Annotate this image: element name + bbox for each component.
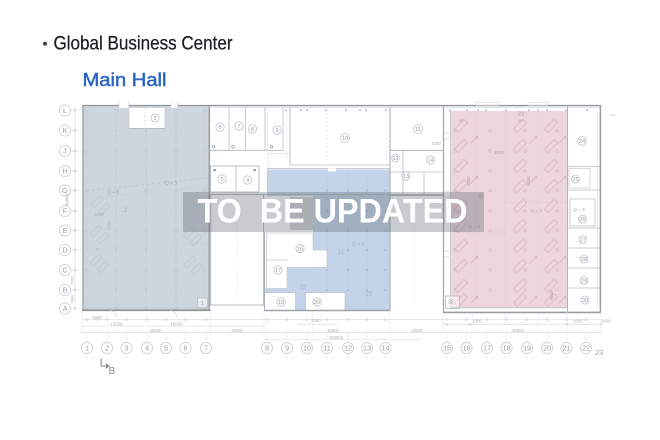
svg-text:45: 45 (95, 247, 100, 252)
svg-text:1: 1 (201, 301, 204, 307)
svg-text:15: 15 (443, 344, 451, 353)
svg-text:J: J (63, 147, 67, 156)
svg-text:32: 32 (448, 300, 454, 306)
svg-text:F: F (63, 207, 68, 216)
svg-text:H: H (62, 167, 67, 176)
svg-text:6000: 6000 (526, 176, 531, 186)
svg-text:22: 22 (366, 292, 373, 298)
svg-text:5: 5 (220, 177, 223, 183)
svg-text:18: 18 (278, 300, 284, 306)
svg-text:D: D (62, 246, 67, 255)
svg-text:30: 30 (582, 298, 588, 304)
svg-text:8: 8 (251, 127, 254, 133)
svg-text:23: 23 (595, 348, 603, 357)
svg-text:45: 45 (518, 118, 523, 123)
svg-text:6: 6 (183, 344, 187, 353)
svg-text:6000: 6000 (107, 221, 112, 231)
svg-text:153603: 153603 (329, 335, 344, 340)
svg-text:Main Hall: Main Hall (83, 69, 167, 90)
svg-text:TO BE UPDATED: TO BE UPDATED (198, 193, 468, 231)
svg-text:Q = 3: Q = 3 (573, 207, 585, 212)
svg-text:1: 1 (85, 344, 89, 353)
svg-text:6000: 6000 (549, 290, 554, 300)
svg-text:36000: 36000 (150, 328, 163, 333)
svg-text:22: 22 (582, 344, 590, 353)
svg-text:36000: 36000 (327, 328, 340, 333)
svg-text:10: 10 (303, 344, 311, 353)
svg-text:6000: 6000 (70, 294, 75, 304)
svg-text:18000: 18000 (171, 321, 184, 326)
svg-text:15: 15 (297, 247, 303, 253)
svg-text:19: 19 (523, 344, 531, 353)
svg-text:Q + 3: Q + 3 (107, 190, 120, 196)
svg-text:20: 20 (543, 344, 551, 353)
svg-text:L: L (63, 106, 67, 115)
svg-text:7: 7 (237, 124, 240, 130)
svg-text:6000: 6000 (573, 319, 583, 324)
svg-text:21: 21 (338, 250, 345, 256)
svg-text:2300: 2300 (311, 318, 321, 323)
svg-text:28: 28 (581, 257, 587, 263)
svg-text:9: 9 (275, 128, 278, 134)
svg-text:12: 12 (393, 156, 399, 162)
svg-text:45: 45 (459, 118, 464, 123)
svg-text:20: 20 (314, 300, 320, 306)
svg-text:B: B (109, 366, 116, 377)
svg-text:19: 19 (300, 285, 307, 291)
svg-text:2000: 2000 (94, 212, 105, 217)
svg-text:9: 9 (285, 344, 289, 353)
svg-text:11: 11 (323, 344, 331, 353)
svg-text:1000: 1000 (472, 319, 482, 324)
svg-text:4: 4 (145, 344, 149, 353)
svg-text:3000: 3000 (601, 319, 611, 324)
svg-text:21: 21 (562, 344, 570, 353)
svg-text:B: B (63, 286, 68, 295)
svg-text:3: 3 (124, 344, 128, 353)
svg-text:60000: 60000 (65, 193, 70, 206)
svg-text:18000: 18000 (231, 328, 244, 333)
svg-text:18400: 18400 (411, 328, 424, 333)
svg-text:14: 14 (381, 344, 389, 353)
svg-text:17: 17 (275, 268, 281, 274)
svg-text:Q + 3: Q + 3 (165, 181, 178, 187)
svg-text:C: C (62, 266, 67, 275)
svg-text:23: 23 (518, 112, 524, 118)
svg-text:18000: 18000 (111, 321, 124, 326)
svg-text:26: 26 (579, 217, 585, 223)
svg-text:24: 24 (579, 139, 585, 145)
svg-text:3: 3 (153, 116, 156, 122)
svg-text:4: 4 (246, 178, 249, 184)
svg-text:10: 10 (342, 136, 348, 142)
svg-text:Global Business Center: Global Business Center (54, 33, 233, 55)
svg-text:27: 27 (580, 238, 586, 244)
svg-text:2: 2 (105, 344, 109, 353)
svg-text:K: K (63, 126, 68, 135)
svg-text:18: 18 (502, 344, 510, 353)
svg-text:8: 8 (265, 344, 269, 353)
svg-text:Q = 3: Q = 3 (352, 242, 365, 248)
svg-text:E: E (63, 226, 68, 235)
svg-text:29: 29 (581, 279, 587, 285)
svg-text:Q = 3: Q = 3 (530, 208, 542, 214)
svg-text:16: 16 (462, 344, 470, 353)
svg-text:6000: 6000 (70, 275, 75, 285)
svg-text:14: 14 (427, 158, 433, 164)
svg-text:12: 12 (344, 344, 352, 353)
svg-text:A: A (63, 304, 68, 313)
svg-text:11: 11 (415, 127, 421, 133)
svg-text:6000: 6000 (466, 176, 471, 186)
svg-text:G: G (62, 186, 68, 195)
svg-text:6000: 6000 (92, 315, 102, 320)
svg-text:45000: 45000 (512, 328, 525, 333)
svg-text:1900: 1900 (494, 150, 505, 155)
svg-text:7: 7 (204, 344, 208, 353)
svg-text:13: 13 (363, 344, 371, 353)
svg-text:13: 13 (403, 174, 409, 180)
svg-text:17: 17 (483, 344, 491, 353)
svg-text:5: 5 (164, 344, 168, 353)
svg-text:6: 6 (218, 125, 221, 131)
svg-text:25: 25 (572, 177, 578, 183)
svg-text:1000: 1000 (431, 141, 441, 146)
